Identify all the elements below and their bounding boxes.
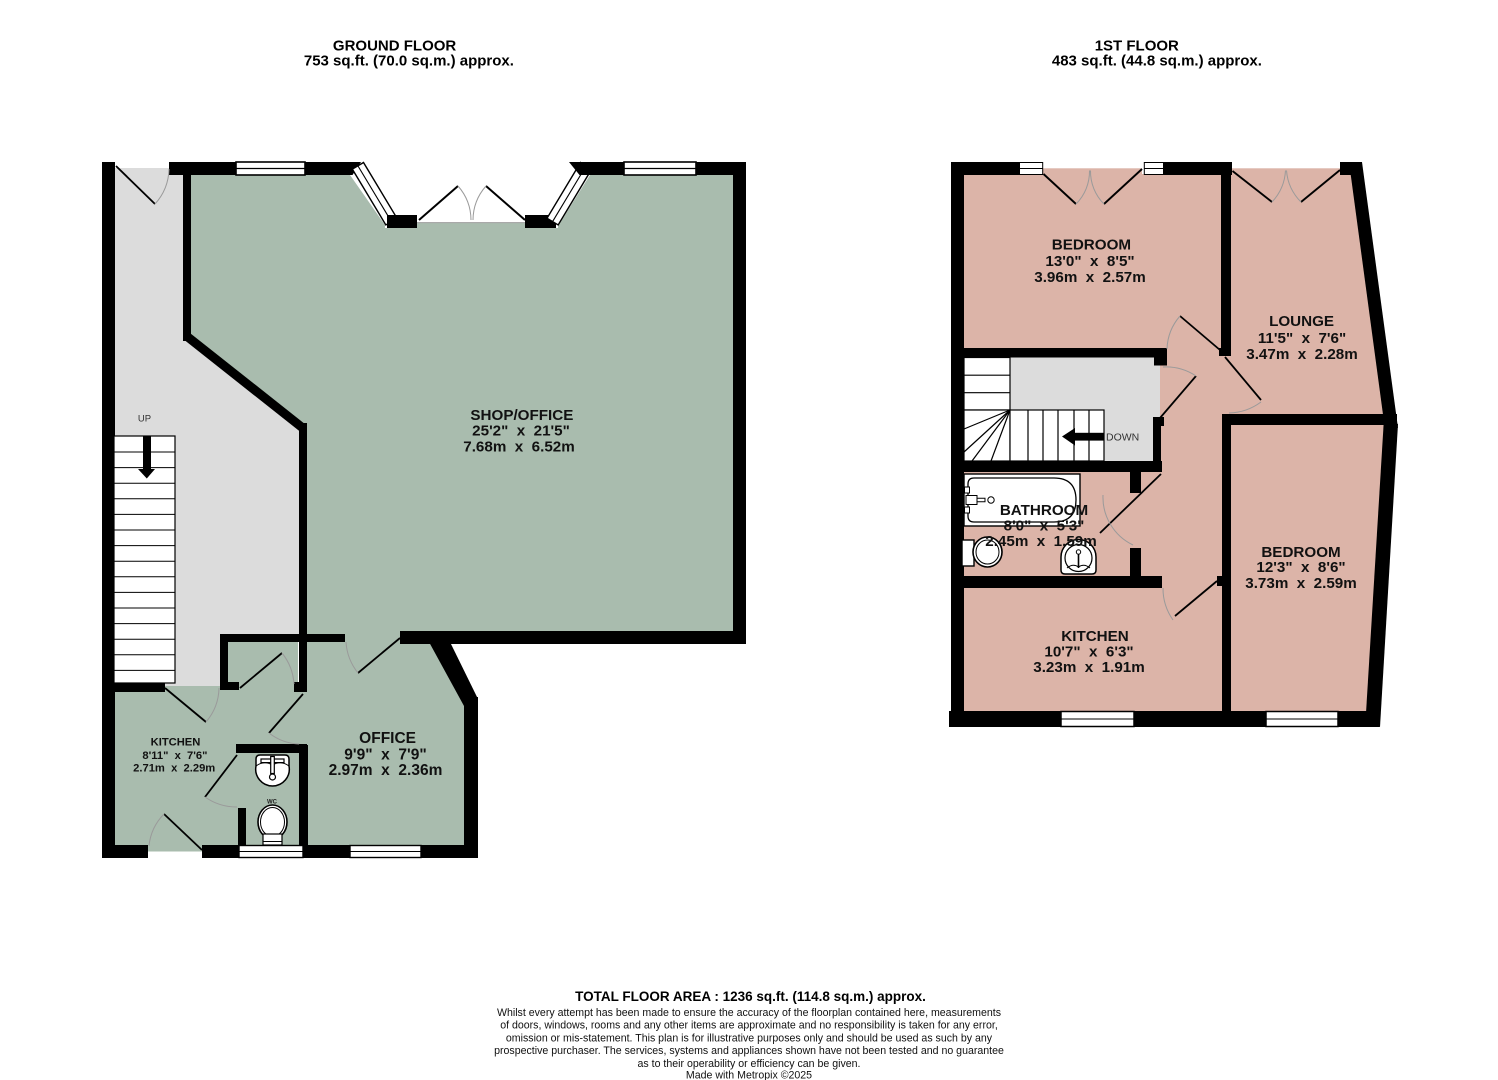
svg-text:9'9" x 7'9": 9'9" x 7'9": [344, 746, 426, 763]
svg-text:7.68m x 6.52m: 7.68m x 6.52m: [463, 438, 574, 455]
svg-text:of doors, windows, rooms and a: of doors, windows, rooms and any other i…: [500, 1020, 998, 1032]
svg-text:8'11" x 7'6": 8'11" x 7'6": [142, 750, 207, 762]
svg-text:OFFICE: OFFICE: [359, 730, 416, 747]
svg-text:3.73m x 2.59m: 3.73m x 2.59m: [1245, 575, 1356, 592]
svg-text:2.45m x 1.59m: 2.45m x 1.59m: [985, 533, 1096, 550]
svg-text:2.97m x 2.36m: 2.97m x 2.36m: [329, 762, 443, 779]
svg-text:KITCHEN: KITCHEN: [151, 737, 201, 749]
svg-text:UP: UP: [138, 414, 151, 425]
svg-text:Whilst every attempt has been: Whilst every attempt has been made to en…: [497, 1007, 1001, 1019]
svg-text:BEDROOM: BEDROOM: [1052, 237, 1131, 254]
svg-text:prospective purchaser. The ser: prospective purchaser. The services, sys…: [494, 1045, 1004, 1057]
svg-text:10'7" x 6'3": 10'7" x 6'3": [1044, 643, 1133, 660]
svg-text:DOWN: DOWN: [1106, 431, 1139, 443]
svg-text:753 sq.ft. (70.0 sq.m.) approx: 753 sq.ft. (70.0 sq.m.) approx.: [304, 52, 514, 69]
svg-text:3.47m x 2.28m: 3.47m x 2.28m: [1246, 346, 1357, 363]
svg-text:25'2" x 21'5": 25'2" x 21'5": [472, 422, 570, 439]
svg-text:13'0" x 8'5": 13'0" x 8'5": [1045, 253, 1134, 270]
svg-text:LOUNGE: LOUNGE: [1269, 313, 1334, 330]
svg-text:8'0" x 5'3": 8'0" x 5'3": [1004, 517, 1085, 534]
svg-text:as to their operability or eff: as to their operability or efficiency ca…: [638, 1058, 861, 1070]
svg-text:WC: WC: [267, 800, 278, 806]
svg-text:3.23m x 1.91m: 3.23m x 1.91m: [1033, 659, 1144, 676]
svg-text:11'5" x 7'6": 11'5" x 7'6": [1258, 330, 1346, 347]
svg-text:483 sq.ft. (44.8 sq.m.) approx: 483 sq.ft. (44.8 sq.m.) approx.: [1052, 53, 1262, 70]
svg-text:omission or mis-statement. Thi: omission or mis-statement. This plan is …: [506, 1032, 993, 1044]
svg-text:2.71m x 2.29m: 2.71m x 2.29m: [133, 763, 215, 775]
svg-text:KITCHEN: KITCHEN: [1061, 628, 1129, 645]
svg-text:TOTAL FLOOR AREA : 1236 sq.ft.: TOTAL FLOOR AREA : 1236 sq.ft. (114.8 sq…: [575, 989, 926, 1004]
svg-text:Made with Metropix ©2025: Made with Metropix ©2025: [686, 1069, 812, 1080]
svg-text:3.96m x 2.57m: 3.96m x 2.57m: [1034, 269, 1145, 286]
svg-text:12'3" x 8'6": 12'3" x 8'6": [1256, 559, 1345, 576]
